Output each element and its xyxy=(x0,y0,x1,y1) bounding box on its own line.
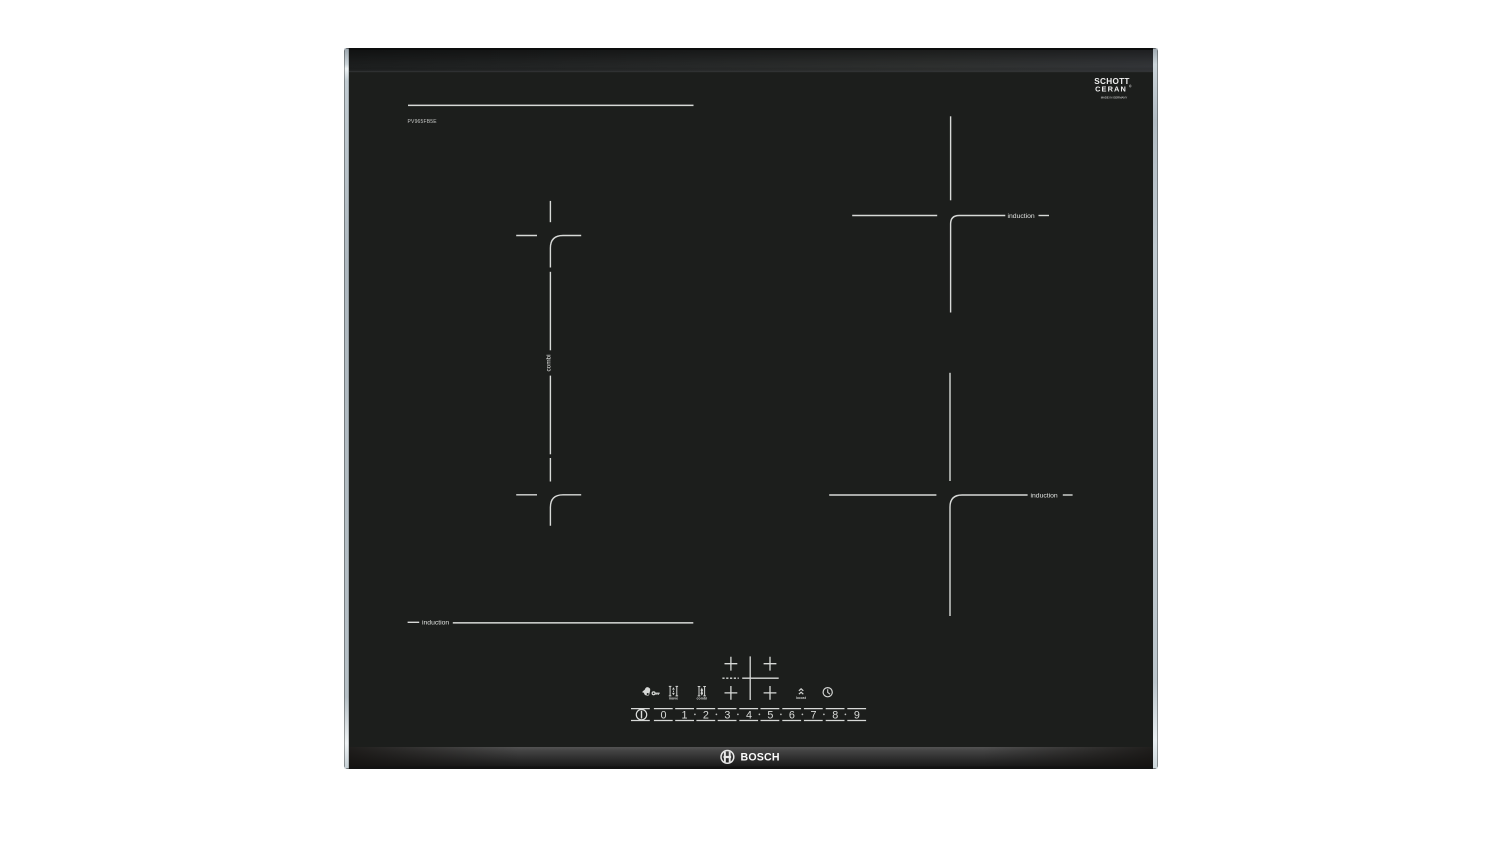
svg-text:induction: induction xyxy=(422,619,449,626)
svg-text:induction: induction xyxy=(1008,213,1035,220)
svg-text:combi: combi xyxy=(697,696,708,700)
svg-text:3: 3 xyxy=(724,709,730,721)
svg-text:5: 5 xyxy=(767,709,773,721)
svg-text:7: 7 xyxy=(810,709,816,721)
svg-text:1: 1 xyxy=(681,709,687,721)
svg-text:9: 9 xyxy=(854,709,860,721)
svg-text:2: 2 xyxy=(703,709,709,721)
svg-text:0: 0 xyxy=(660,709,666,721)
svg-text:boost: boost xyxy=(796,696,807,700)
svg-text:CERAN: CERAN xyxy=(1095,85,1127,94)
svg-text:PV965FB5E: PV965FB5E xyxy=(408,119,438,125)
svg-text:6: 6 xyxy=(789,709,795,721)
svg-text:combi: combi xyxy=(546,354,553,371)
svg-text:8: 8 xyxy=(832,709,838,721)
svg-text:MADE IN GERMANY: MADE IN GERMANY xyxy=(1101,95,1128,99)
svg-text:move: move xyxy=(669,696,678,700)
svg-text:BOSCH: BOSCH xyxy=(741,752,780,764)
svg-text:4: 4 xyxy=(746,709,752,721)
svg-text:induction: induction xyxy=(1031,493,1058,500)
